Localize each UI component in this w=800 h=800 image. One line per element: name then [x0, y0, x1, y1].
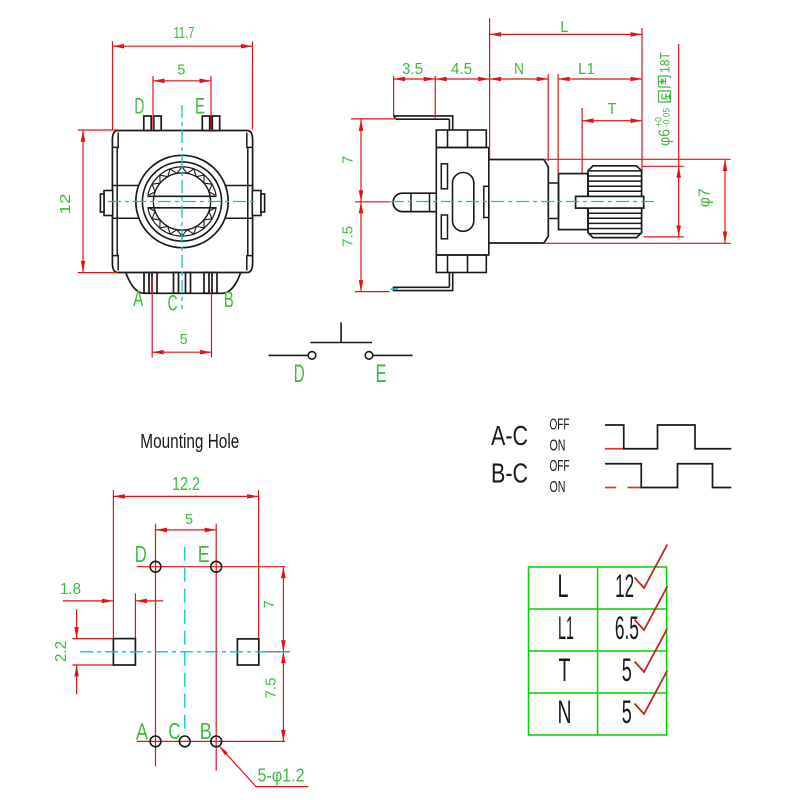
svg-text:5: 5	[622, 694, 632, 730]
svg-text:B: B	[224, 287, 234, 312]
svg-text:1.8: 1.8	[60, 581, 81, 598]
svg-text:7: 7	[339, 156, 356, 164]
svg-text:12: 12	[57, 194, 74, 215]
svg-text:A-C: A-C	[491, 420, 528, 451]
svg-text:A: A	[133, 286, 143, 311]
svg-text:7: 7	[261, 600, 278, 608]
svg-text:5: 5	[177, 61, 185, 78]
svg-text:5: 5	[180, 331, 188, 348]
svg-text:T: T	[608, 101, 617, 118]
svg-text:12: 12	[615, 568, 634, 604]
svg-text:L: L	[560, 19, 568, 36]
svg-text:4.5: 4.5	[451, 61, 472, 78]
svg-text:7.5: 7.5	[263, 678, 280, 699]
svg-text:D: D	[135, 541, 147, 567]
svg-text:A: A	[136, 719, 149, 745]
svg-text:C: C	[168, 718, 180, 744]
svg-text:D: D	[294, 360, 305, 388]
svg-text:ON: ON	[550, 438, 566, 455]
svg-text:N: N	[514, 61, 524, 78]
svg-text:L1: L1	[558, 610, 574, 646]
svg-text:L1: L1	[578, 61, 595, 78]
svg-text:φ7: φ7	[697, 188, 714, 207]
svg-text:2.2: 2.2	[53, 641, 70, 662]
svg-text:φ6: φ6	[657, 129, 674, 146]
svg-text:18T: 18T	[657, 52, 673, 73]
svg-text:T: T	[559, 652, 571, 688]
svg-text:L: L	[558, 568, 569, 604]
svg-text:5: 5	[622, 652, 632, 688]
svg-text:OFF: OFF	[550, 417, 570, 434]
svg-text:N: N	[558, 694, 572, 730]
svg-text:D: D	[134, 94, 144, 119]
svg-text:5-φ1.2: 5-φ1.2	[258, 766, 305, 786]
svg-text:E: E	[376, 360, 387, 388]
svg-text:-0.05: -0.05	[662, 108, 672, 127]
svg-text:C: C	[168, 291, 178, 316]
svg-text:B-C: B-C	[491, 457, 528, 488]
svg-text:E: E	[198, 541, 210, 567]
svg-text:E: E	[195, 94, 205, 119]
svg-text:5: 5	[185, 511, 193, 528]
svg-text:7.5: 7.5	[339, 226, 356, 247]
svg-text:6.5: 6.5	[615, 610, 639, 646]
svg-text:12.2: 12.2	[172, 474, 200, 494]
svg-text:3.5: 3.5	[402, 61, 423, 78]
svg-text:11.7: 11.7	[174, 25, 195, 42]
svg-text:B: B	[200, 718, 212, 744]
svg-text:ON: ON	[550, 479, 566, 496]
svg-text:Mounting Hole: Mounting Hole	[140, 431, 239, 453]
svg-text:OFF: OFF	[550, 458, 570, 475]
